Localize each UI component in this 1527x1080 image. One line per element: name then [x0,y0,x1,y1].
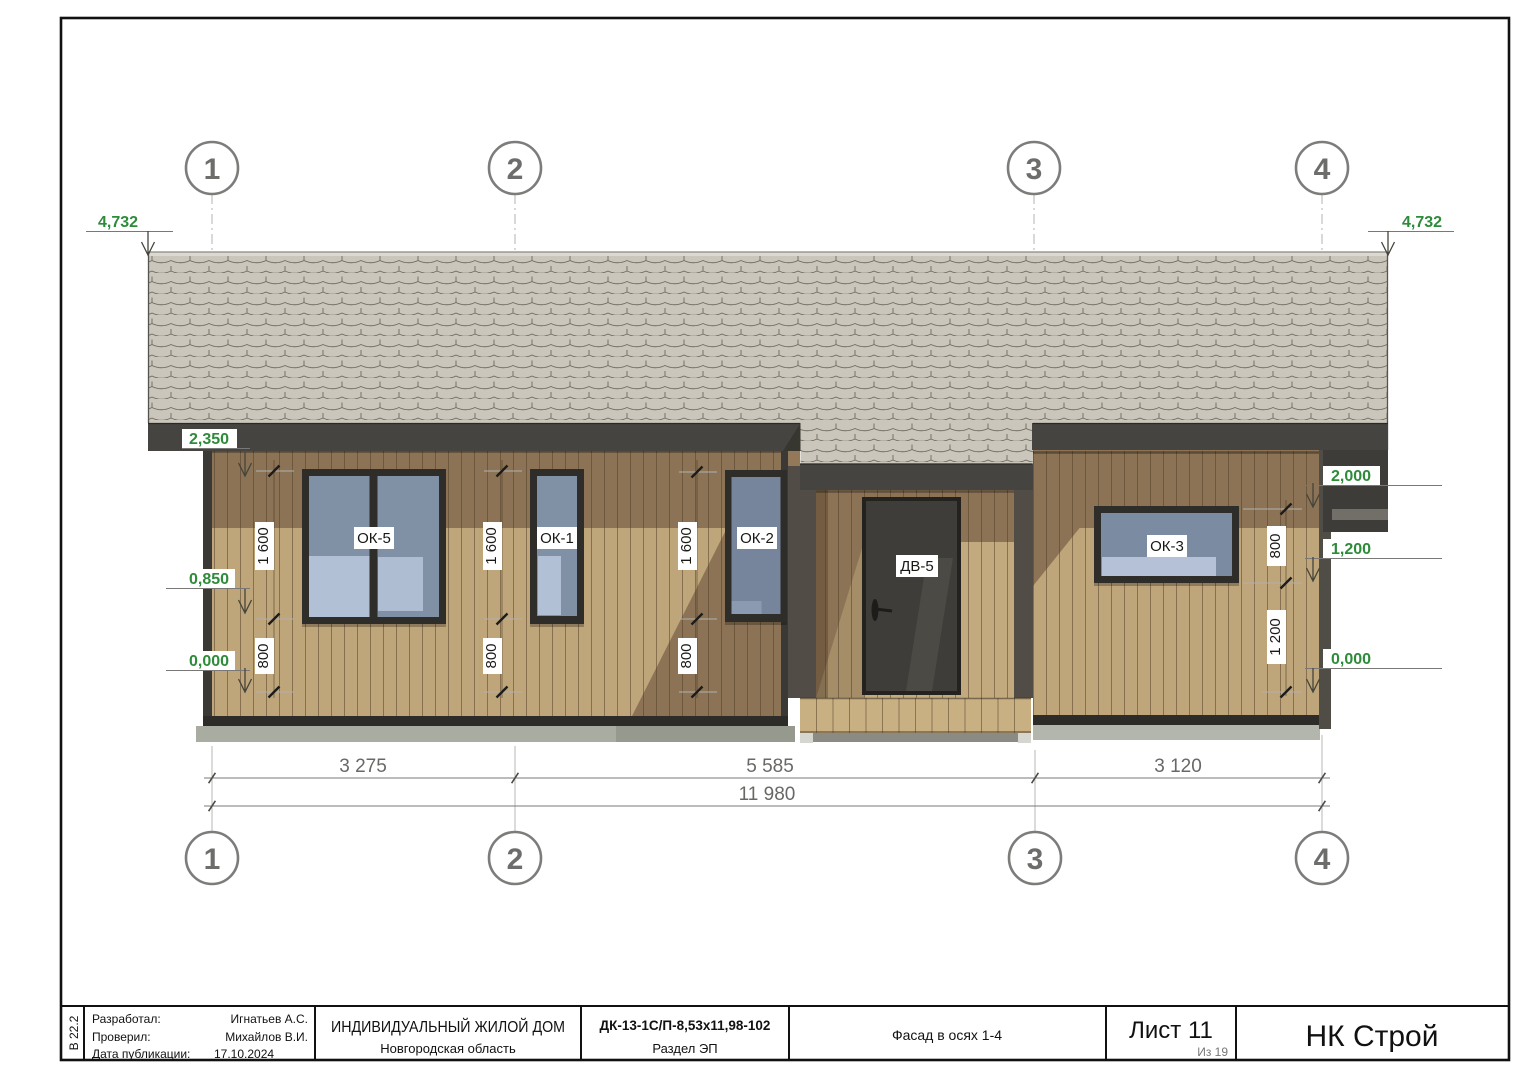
svg-text:ДК-13-1С/П-8,53х11,98-102: ДК-13-1С/П-8,53х11,98-102 [600,1018,771,1033]
svg-text:ОК-5: ОК-5 [357,530,391,547]
svg-text:1 600: 1 600 [678,527,695,565]
svg-text:В 22.2: В 22.2 [67,1015,81,1050]
svg-text:ОК-3: ОК-3 [1150,538,1184,555]
svg-text:1: 1 [204,843,221,876]
svg-text:1: 1 [204,153,221,186]
svg-text:ДВ-5: ДВ-5 [900,558,934,575]
svg-text:4,732: 4,732 [98,214,138,231]
svg-text:Проверил:: Проверил: [92,1030,151,1044]
svg-text:ИНДИВИДУАЛЬНЫЙ ЖИЛОЙ ДОМ: ИНДИВИДУАЛЬНЫЙ ЖИЛОЙ ДОМ [331,1017,565,1036]
svg-text:Дата публикации:: Дата публикации: [92,1047,190,1061]
svg-text:Из 19: Из 19 [1197,1045,1228,1059]
svg-text:Игнатьев А.С.: Игнатьев А.С. [230,1012,308,1026]
svg-text:800: 800 [255,643,272,668]
svg-text:Разработал:: Разработал: [92,1012,161,1026]
svg-text:0,000: 0,000 [1331,651,1371,668]
svg-text:5 585: 5 585 [746,756,794,777]
svg-text:Фасад в осях 1-4: Фасад в осях 1-4 [892,1027,1002,1043]
svg-text:3: 3 [1027,843,1044,876]
svg-text:3: 3 [1026,153,1043,186]
svg-text:Михайлов В.И.: Михайлов В.И. [225,1030,308,1044]
svg-text:4: 4 [1314,153,1331,186]
svg-text:1,200: 1,200 [1331,541,1371,558]
svg-text:3 275: 3 275 [339,756,387,777]
svg-text:2,350: 2,350 [189,431,229,448]
svg-text:4: 4 [1314,843,1331,876]
svg-text:0,850: 0,850 [189,571,229,588]
svg-text:ОК-1: ОК-1 [540,530,574,547]
svg-text:1 600: 1 600 [483,527,500,565]
svg-text:ОК-2: ОК-2 [740,530,774,547]
svg-text:800: 800 [483,643,500,668]
svg-text:2,000: 2,000 [1331,468,1371,485]
svg-text:4,732: 4,732 [1402,214,1442,231]
svg-text:Лист 11: Лист 11 [1129,1017,1213,1044]
svg-text:2: 2 [507,843,524,876]
svg-text:Раздел ЭП: Раздел ЭП [652,1041,717,1056]
svg-text:1 200: 1 200 [1267,618,1284,656]
svg-text:Новгородская область: Новгородская область [380,1041,516,1056]
svg-text:3 120: 3 120 [1154,756,1202,777]
svg-text:НК Строй: НК Строй [1305,1020,1438,1053]
svg-text:11 980: 11 980 [739,784,796,805]
svg-text:800: 800 [1267,533,1284,558]
svg-text:800: 800 [678,643,695,668]
svg-text:17.10.2024: 17.10.2024 [214,1047,274,1061]
svg-text:1 600: 1 600 [255,527,272,565]
svg-text:0,000: 0,000 [189,653,229,670]
svg-text:2: 2 [507,153,524,186]
